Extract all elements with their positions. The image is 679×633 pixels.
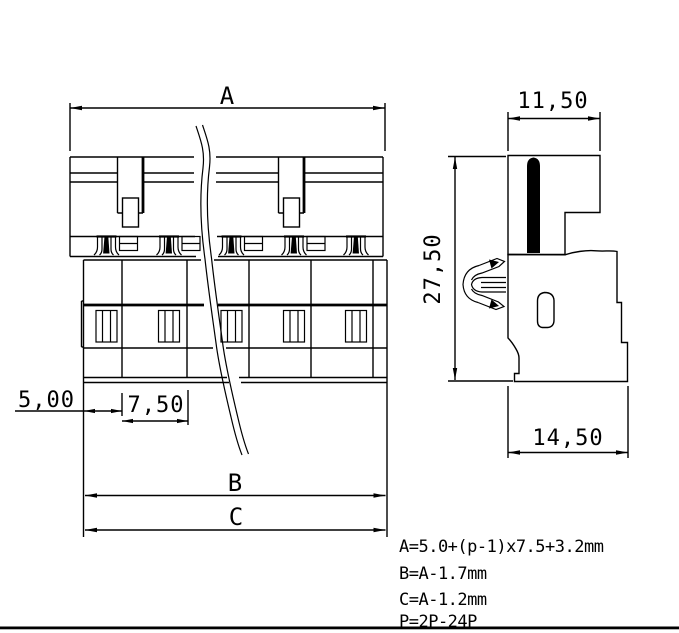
contact-fork — [344, 237, 369, 256]
break-line — [196, 125, 249, 455]
retention-clip — [463, 259, 506, 310]
dimension-27-50: 27,50 — [421, 157, 513, 382]
side-upper-housing — [508, 156, 600, 255]
dimension-14-50: 14,50 — [508, 386, 628, 458]
d-hole — [538, 293, 555, 328]
contact-window — [221, 311, 242, 343]
dim-b-label: B — [228, 469, 242, 497]
dim-14-50-label: 14,50 — [532, 426, 603, 451]
dimension-a: A — [70, 82, 385, 151]
formula-b: B=A-1.7mm — [399, 564, 487, 584]
dim-5-00-label: 5,00 — [18, 388, 75, 413]
side-view: 11,50 — [421, 89, 628, 458]
drawing-sheet: A — [0, 0, 679, 633]
notes: A=5.0+(p-1)x7.5+3.2mm B=A-1.7mm C=A-1.2m… — [399, 537, 604, 632]
bottom-border-line — [0, 627, 679, 630]
formula-a: A=5.0+(p-1)x7.5+3.2mm — [399, 537, 604, 557]
contact-step-box — [307, 237, 325, 251]
contact-pin — [527, 158, 540, 254]
contact-fork — [219, 237, 244, 256]
dimension-7-50: 7,50 — [122, 390, 188, 425]
contact-fork — [157, 237, 182, 256]
dimension-c: C — [85, 503, 386, 532]
dimension-11-50: 11,50 — [508, 89, 600, 151]
contact-step-box — [182, 237, 200, 251]
upper-housing — [70, 157, 383, 257]
dim-c-label: C — [229, 503, 243, 531]
connector-technical-drawing: A — [0, 0, 679, 633]
contact-window — [159, 311, 180, 343]
dimension-b: B — [85, 469, 386, 498]
front-view: A — [15, 82, 387, 537]
contact-window — [284, 311, 305, 343]
contact-step-box — [120, 237, 138, 251]
contact-window — [346, 311, 367, 343]
contact-fork — [282, 237, 307, 256]
contact-step-box — [245, 237, 263, 251]
contact-fork — [94, 237, 119, 256]
latch-slot — [118, 157, 144, 227]
latch-slot — [279, 157, 305, 227]
formula-c: C=A-1.2mm — [399, 590, 487, 610]
contact-window — [96, 311, 117, 343]
dim-7-50-label: 7,50 — [128, 393, 185, 418]
dimension-5-00: 5,00 — [15, 388, 122, 416]
dim-a-label: A — [220, 82, 235, 110]
side-lower-housing — [508, 251, 628, 382]
dim-11-50-label: 11,50 — [517, 89, 588, 114]
dim-27-50-label: 27,50 — [421, 233, 446, 304]
